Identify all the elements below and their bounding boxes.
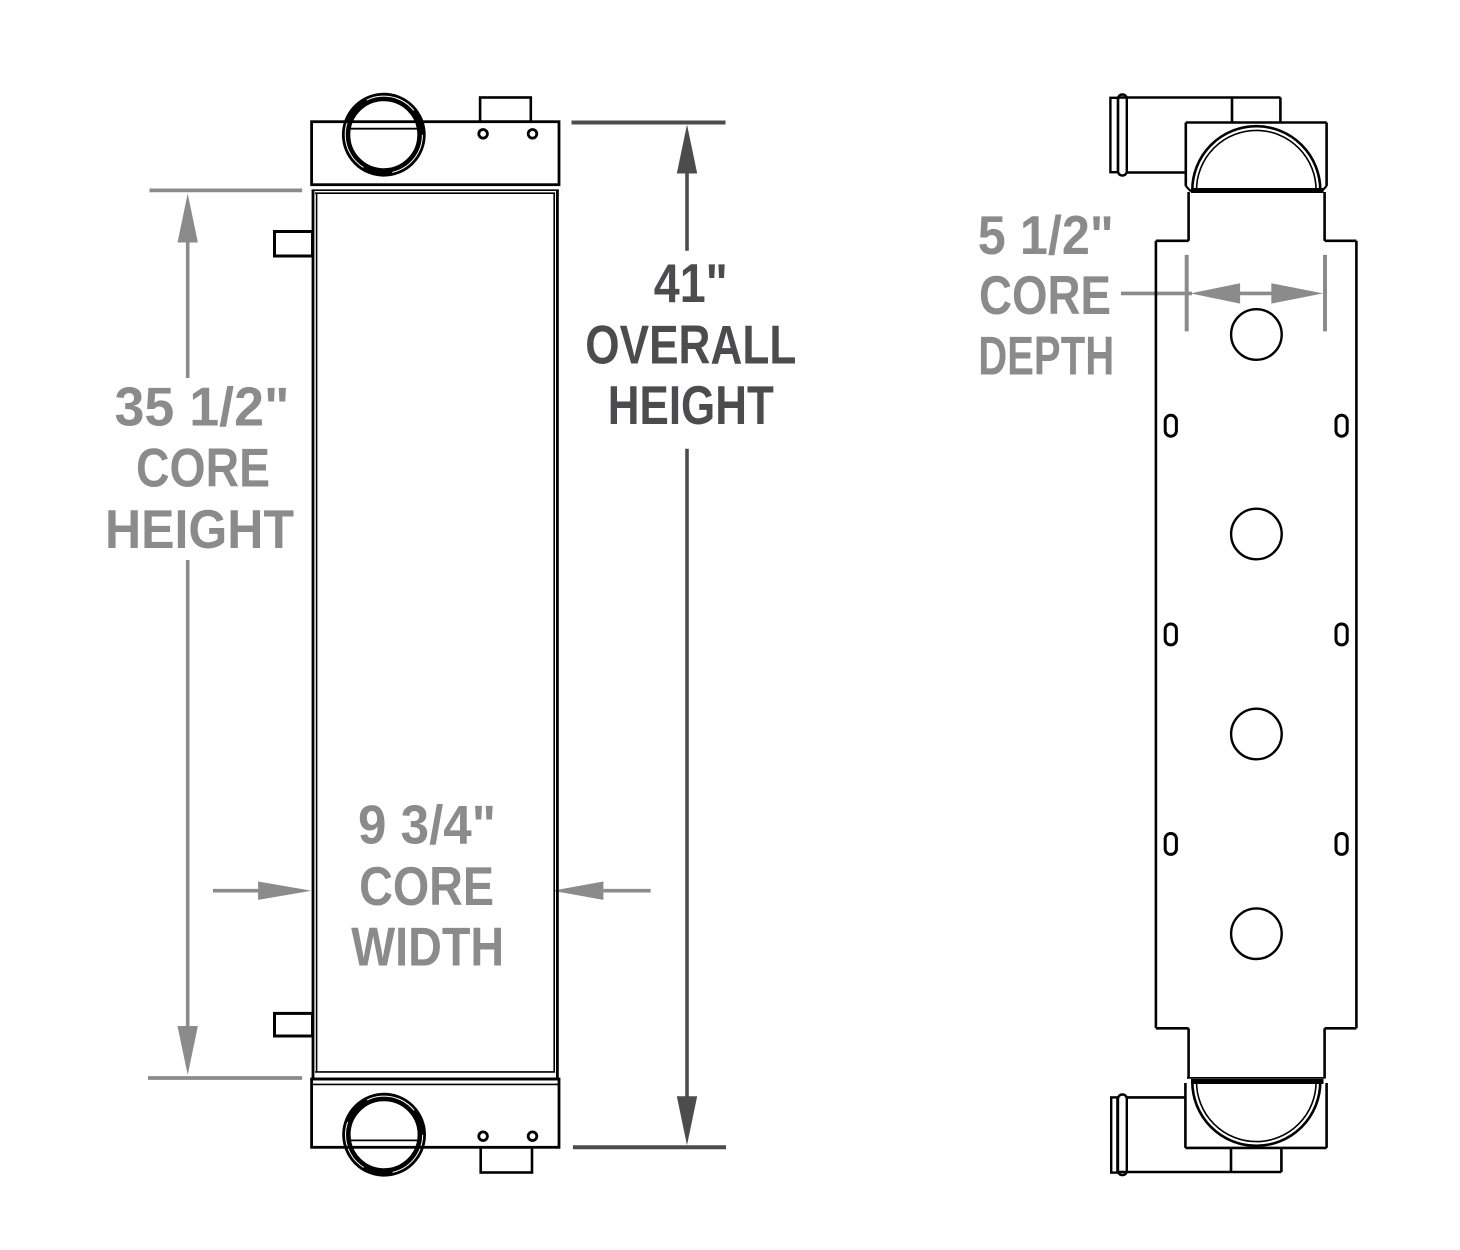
svg-text:OVERALL: OVERALL (585, 313, 796, 375)
svg-text:5 1/2": 5 1/2" (978, 204, 1114, 266)
svg-text:CORE: CORE (359, 855, 494, 917)
svg-text:HEIGHT: HEIGHT (608, 374, 774, 436)
svg-text:HEIGHT: HEIGHT (105, 498, 294, 560)
svg-text:CORE: CORE (979, 264, 1111, 326)
svg-text:41": 41" (654, 252, 728, 314)
svg-text:35 1/2": 35 1/2" (115, 375, 290, 437)
svg-text:DEPTH: DEPTH (978, 325, 1114, 387)
svg-text:CORE: CORE (136, 436, 270, 498)
svg-text:WIDTH: WIDTH (351, 915, 504, 977)
svg-text:9 3/4": 9 3/4" (358, 793, 496, 855)
